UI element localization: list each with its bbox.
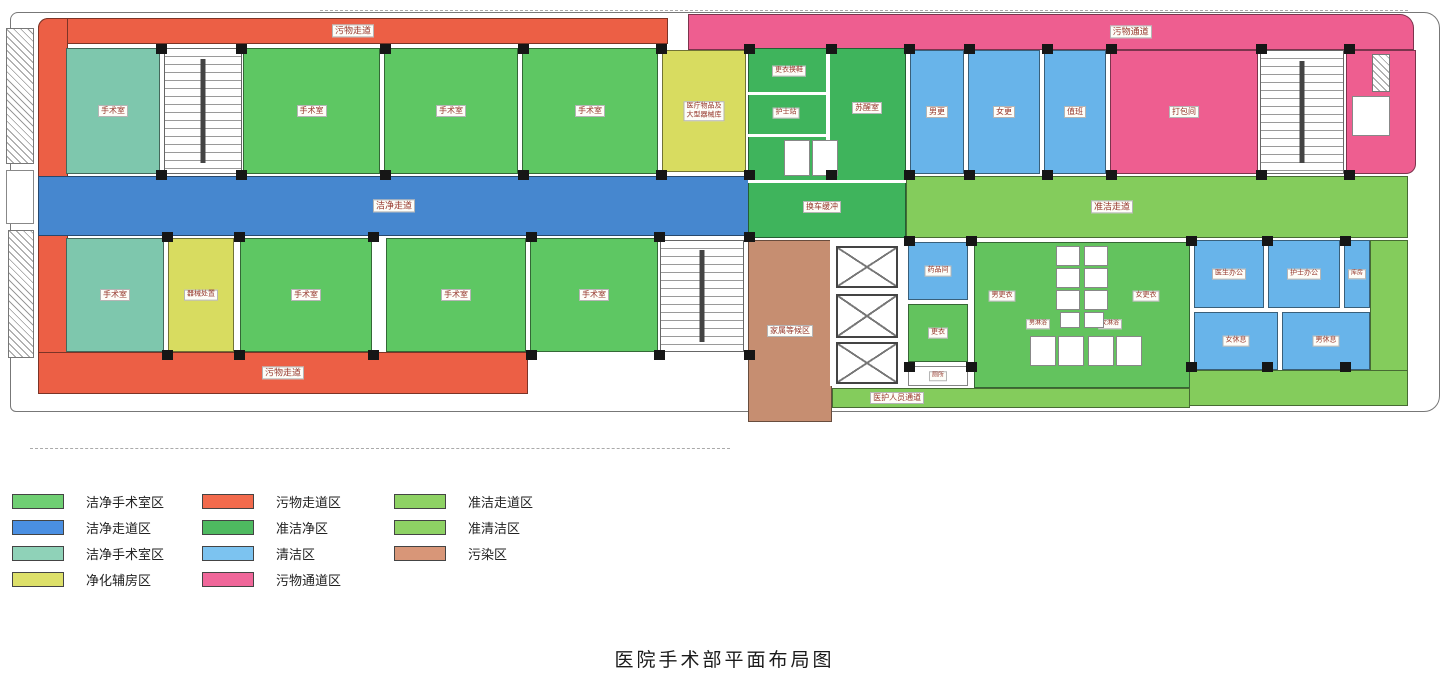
legend-swatch [394, 494, 446, 509]
legend-label: 准清洁区 [468, 518, 520, 537]
cell-feature [1084, 268, 1108, 288]
legend-label: 洁净走道区 [86, 518, 151, 537]
legend: 洁净手术室区洁净走道区洁净手术室区净化辅房区污物走道区准洁净区清洁区污物通道区准… [12, 488, 584, 592]
legend-item: 污染区 [394, 540, 584, 566]
cell-feature [1056, 246, 1080, 266]
label-bed-exchange-label: 换车缓冲 [803, 201, 841, 213]
corridor-staff-label: 医护人员通道 [870, 392, 924, 404]
structural-column [826, 44, 837, 54]
cell-feature [1088, 336, 1114, 366]
staircase [1260, 50, 1344, 174]
legend-label: 洁净手术室区 [86, 544, 164, 563]
legend-item: 净化辅房区 [12, 566, 202, 592]
structural-column [904, 236, 915, 246]
legend-swatch [394, 546, 446, 561]
staircase [164, 48, 242, 174]
structural-column [904, 44, 915, 54]
elevator-shaft [836, 342, 898, 384]
corridor-dirty-top: 污物走道 [38, 18, 668, 44]
corridor-semiclean: 准洁走道 [906, 176, 1408, 238]
legend-item: 污物通道区 [202, 566, 394, 592]
cell-feature [1084, 246, 1108, 266]
structural-column [1340, 362, 1351, 372]
legend-swatch [12, 572, 64, 587]
structural-column [656, 44, 667, 54]
tick-feature [320, 10, 1408, 11]
structural-column [744, 232, 755, 242]
label-recovery-label: 苏醒室 [852, 102, 882, 114]
structural-column [966, 236, 977, 246]
hatch-feature [1372, 54, 1390, 92]
staircase [660, 240, 744, 352]
structural-column [526, 350, 537, 360]
structural-column [234, 350, 245, 360]
wline-feature [748, 92, 828, 95]
elevator-shaft [836, 294, 898, 338]
structural-column [236, 44, 247, 54]
cell-feature [1084, 312, 1104, 328]
changing-room-small-label: 更衣 [928, 328, 948, 339]
structural-column [1262, 362, 1273, 372]
legend-swatch [12, 494, 64, 509]
structural-column [654, 232, 665, 242]
legend-label: 洁净手术室区 [86, 492, 164, 511]
female-rest-room-label: 女休息 [1223, 336, 1250, 347]
structural-column [156, 44, 167, 54]
cell-feature [1116, 336, 1142, 366]
corridor-waste-label: 污物通道 [1110, 25, 1152, 38]
structural-column [156, 170, 167, 180]
corridor-dirty-bottom-label: 污物走道 [262, 366, 304, 379]
family-waiting-label: 家属等候区 [767, 325, 813, 337]
legend-column-1: 洁净手术室区洁净走道区洁净手术室区净化辅房区 [12, 488, 202, 592]
legend-item: 准清洁区 [394, 514, 584, 540]
structural-column [162, 232, 173, 242]
legend-column-3: 准洁走道区准清洁区污染区 [394, 488, 584, 592]
structural-column [1042, 44, 1053, 54]
wline-feature [748, 134, 828, 137]
structural-column [1106, 170, 1117, 180]
staff-room-2: 女更 [968, 50, 1040, 174]
structural-column [518, 44, 529, 54]
or-room-4-label: 手术室 [575, 105, 605, 117]
or-room-6: 手术室 [240, 238, 372, 352]
storage-room: 库房 [1344, 240, 1370, 308]
or-room-3: 手术室 [384, 48, 518, 174]
or-room-5-label: 手术室 [100, 289, 130, 301]
legend-swatch [202, 520, 254, 535]
wline-feature [748, 180, 906, 183]
label-male-changing-label: 男更衣 [989, 291, 1016, 302]
corridor-dirty-bottom: 污物走道 [38, 352, 528, 394]
floor-plan: 污物走道污物走道洁净走道污物通道准洁走道手术室手术室手术室手术室手术室器械处置手… [0, 0, 1449, 460]
wc-room: 厕所 [908, 366, 968, 386]
legend-item: 准洁走道区 [394, 488, 584, 514]
male-rest-room: 男休息 [1282, 312, 1370, 370]
structural-column [380, 170, 391, 180]
legend-label: 清洁区 [276, 544, 315, 563]
staff-room-3: 值班 [1044, 50, 1106, 174]
cell-feature [6, 170, 34, 224]
legend-item: 洁净走道区 [12, 514, 202, 540]
supply-room-label: 医疗物品及大型器械库 [684, 101, 725, 121]
hatch-feature [6, 28, 34, 164]
corridor-clean-label: 洁净走道 [373, 199, 415, 212]
structural-column [1256, 44, 1267, 54]
corridor-dirty-top-label: 污物走道 [332, 24, 374, 37]
structural-column [904, 362, 915, 372]
wc-room-label: 厕所 [929, 371, 947, 381]
legend-swatch [202, 572, 254, 587]
staff-room-3-label: 值班 [1064, 106, 1086, 118]
staff-room-2-label: 女更 [993, 106, 1015, 118]
structural-column [826, 170, 837, 180]
legend-label: 污物通道区 [276, 570, 341, 589]
legend-item: 清洁区 [202, 540, 394, 566]
structural-column [744, 44, 755, 54]
structural-column [964, 170, 975, 180]
structural-column [1186, 362, 1197, 372]
legend-label: 污物走道区 [276, 492, 341, 511]
structural-column [1106, 44, 1117, 54]
cell-feature [1084, 290, 1108, 310]
structural-column [656, 170, 667, 180]
pharmacy-room: 药品间 [908, 242, 968, 300]
changing-room-small: 更衣 [908, 304, 968, 362]
structural-column [368, 350, 379, 360]
legend-item: 污物走道区 [202, 488, 394, 514]
corridor-semiclean-bottom [1186, 370, 1408, 406]
cell-feature [1352, 96, 1390, 136]
staff-room-1: 男更 [910, 50, 964, 174]
corridor-clean: 洁净走道 [38, 176, 750, 236]
legend-column-2: 污物走道区准洁净区清洁区污物通道区 [202, 488, 394, 592]
structural-column [380, 44, 391, 54]
cell-feature [1060, 312, 1080, 328]
packing-room-label: 打包间 [1169, 106, 1199, 118]
aux-room-label: 器械处置 [184, 290, 218, 301]
or-room-1: 手术室 [66, 48, 160, 174]
or-room-4: 手术室 [522, 48, 658, 174]
nurse-office: 护士办公 [1268, 240, 1340, 308]
label-nurse-station-label: 护士站 [773, 108, 800, 119]
structural-column [744, 350, 755, 360]
or-room-2: 手术室 [243, 48, 380, 174]
legend-label: 准洁净区 [276, 518, 328, 537]
structural-column [966, 362, 977, 372]
nurse-office-label: 护士办公 [1287, 269, 1321, 280]
structural-column [1042, 170, 1053, 180]
hatch-feature [8, 230, 34, 358]
corridor-staff: 医护人员通道 [832, 388, 1190, 408]
legend-item: 准洁净区 [202, 514, 394, 540]
tick-feature [30, 448, 730, 449]
male-rest-room-label: 男休息 [1313, 336, 1340, 347]
or-room-3-label: 手术室 [436, 105, 466, 117]
structural-column [526, 232, 537, 242]
aux-room: 器械处置 [168, 238, 234, 352]
supply-room: 医疗物品及大型器械库 [662, 50, 746, 172]
structural-column [744, 170, 755, 180]
cell-feature [1030, 336, 1056, 366]
corridor-semiclean-label: 准洁走道 [1091, 200, 1133, 213]
cell-feature [1056, 268, 1080, 288]
legend-swatch [394, 520, 446, 535]
staff-room-1-label: 男更 [926, 106, 948, 118]
structural-column [234, 232, 245, 242]
legend-swatch [202, 546, 254, 561]
structural-column [964, 44, 975, 54]
legend-label: 污染区 [468, 544, 507, 563]
pharmacy-room-label: 药品间 [925, 266, 952, 277]
changing-block [974, 242, 1190, 388]
structural-column [654, 350, 665, 360]
legend-label: 净化辅房区 [86, 570, 151, 589]
or-room-6-label: 手术室 [291, 289, 321, 301]
elevator-shaft [836, 246, 898, 288]
legend-item: 洁净手术室区 [12, 488, 202, 514]
cell-feature [1056, 290, 1080, 310]
packing-room: 打包间 [1110, 50, 1258, 174]
label-change-shoes-label: 更衣换鞋 [772, 66, 806, 77]
or-room-1-label: 手术室 [98, 105, 128, 117]
legend-item: 洁净手术室区 [12, 540, 202, 566]
structural-column [1256, 170, 1267, 180]
storage-room-label: 库房 [1348, 269, 1366, 279]
cell-feature [1058, 336, 1084, 366]
label-female-changing-label: 女更衣 [1133, 291, 1160, 302]
or-room-8: 手术室 [530, 238, 658, 352]
structural-column [1344, 44, 1355, 54]
or-room-7: 手术室 [386, 238, 526, 352]
legend-label: 准洁走道区 [468, 492, 533, 511]
or-room-7-label: 手术室 [441, 289, 471, 301]
or-room-5: 手术室 [66, 238, 164, 352]
structural-column [904, 170, 915, 180]
structural-column [1262, 236, 1273, 246]
legend-swatch [12, 546, 64, 561]
structural-column [1340, 236, 1351, 246]
structural-column [518, 170, 529, 180]
label-male-shower-label: 男淋浴 [1026, 319, 1050, 329]
cell-feature [784, 140, 810, 176]
doctor-office: 医生办公 [1194, 240, 1264, 308]
structural-column [1186, 236, 1197, 246]
or-room-8-label: 手术室 [579, 289, 609, 301]
structural-column [162, 350, 173, 360]
structural-column [236, 170, 247, 180]
doctor-office-label: 医生办公 [1212, 269, 1246, 280]
structural-column [1344, 170, 1355, 180]
or-room-2-label: 手术室 [297, 105, 327, 117]
structural-column [368, 232, 379, 242]
legend-swatch [12, 520, 64, 535]
legend-swatch [202, 494, 254, 509]
diagram-title: 医院手术部平面布局图 [0, 645, 1449, 672]
family-waiting: 家属等候区 [748, 240, 832, 422]
